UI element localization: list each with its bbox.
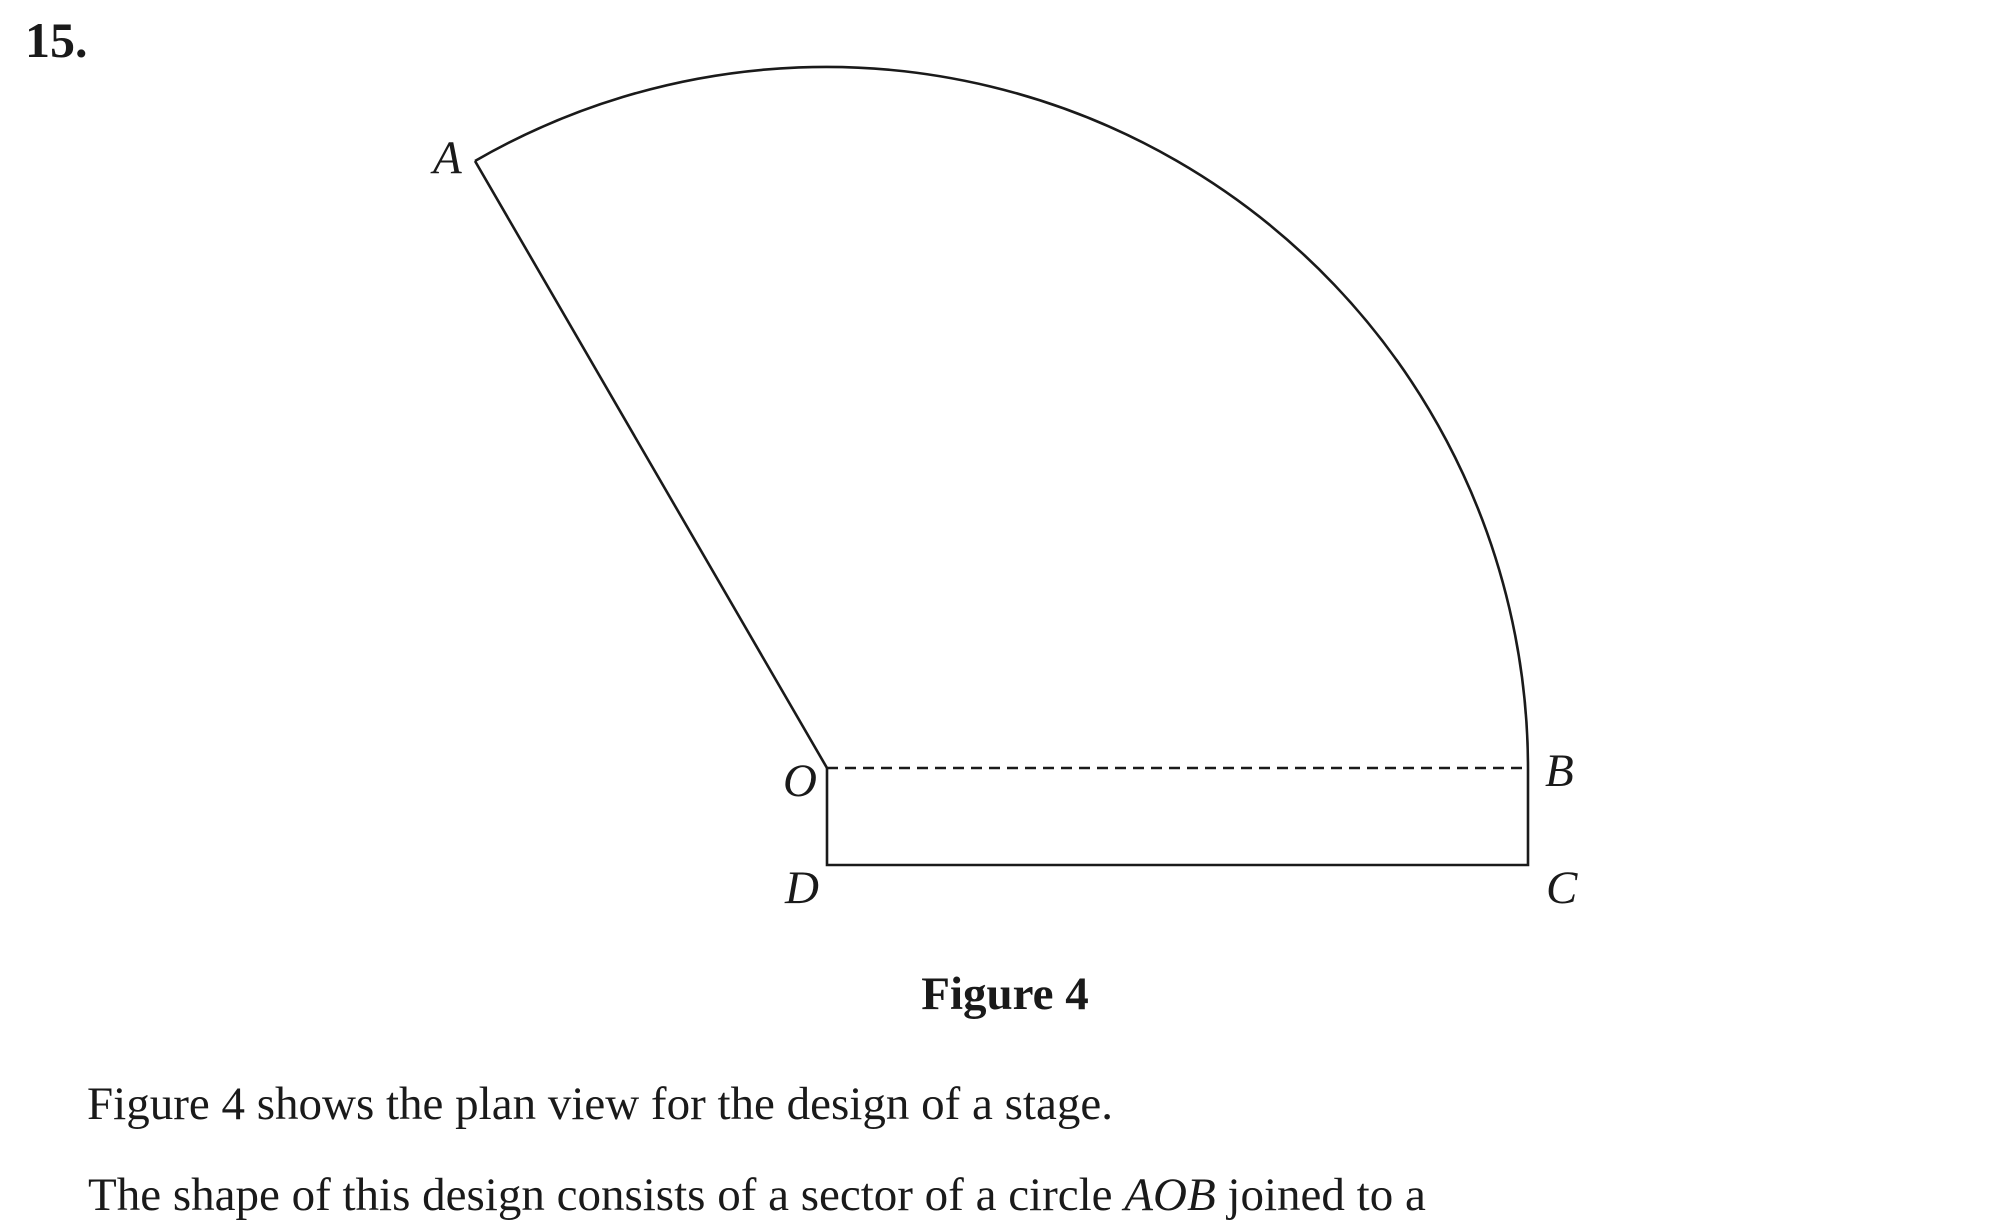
exam-question-page: 15. A O B D C Figure 4 Figure 4 shows th…: [0, 0, 2000, 1232]
point-label-A: A: [433, 135, 462, 182]
sector-arc-AB: [475, 67, 1528, 768]
point-label-B: B: [1545, 748, 1574, 795]
stage-plan-figure: [0, 0, 2000, 1232]
radius-line-OA: [475, 161, 827, 768]
point-label-D: D: [785, 865, 819, 912]
description-line-2-prefix: The shape of this design consists of a s…: [88, 1169, 1124, 1221]
point-label-O: O: [783, 758, 817, 805]
point-label-C: C: [1546, 865, 1577, 912]
description-line-2: The shape of this design consists of a s…: [88, 1172, 1426, 1219]
description-line-1: Figure 4 shows the plan view for the des…: [87, 1081, 1113, 1128]
sector-name-AOB: AOB: [1124, 1169, 1215, 1221]
description-line-2-suffix: joined to a: [1216, 1169, 1426, 1221]
figure-line-group: [475, 67, 1528, 865]
figure-caption: Figure 4: [921, 971, 1089, 1018]
rectangle-OBCD-sides: [827, 768, 1528, 865]
